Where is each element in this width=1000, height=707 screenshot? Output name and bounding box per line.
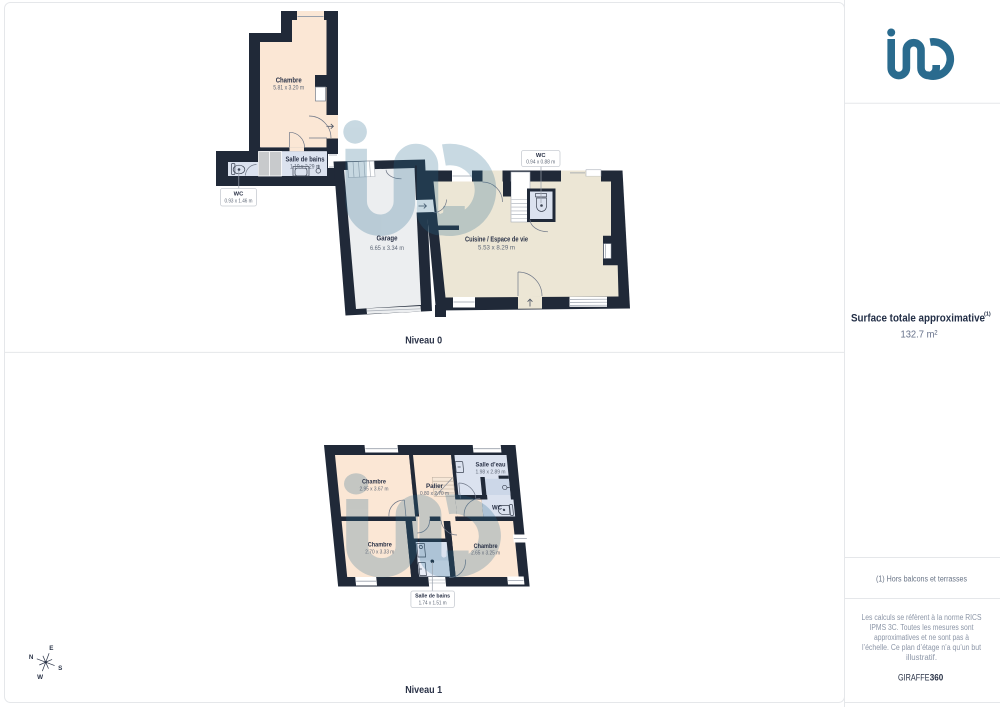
svg-text:Salle d’eau: Salle d’eau [476,462,506,469]
svg-text:W: W [37,674,43,681]
svg-text:GIRAFFE: GIRAFFE [898,673,930,684]
svg-text:1.98 x 2.89 m: 1.98 x 2.89 m [476,470,506,476]
svg-text:Chambre: Chambre [362,479,386,486]
svg-text:approximatives et ne sont pas: approximatives et ne sont pas à [874,633,969,642]
svg-text:Salle de bains: Salle de bains [415,594,450,600]
svg-text:Chambre: Chambre [276,78,302,85]
svg-text:(1) Hors balcons et terrasses: (1) Hors balcons et terrasses [876,575,967,584]
svg-text:1.19 x 2.29 m: 1.19 x 2.29 m [290,165,320,171]
svg-text:Salle de bains: Salle de bains [286,157,325,164]
svg-text:l’échelle. Ce plan d’étage n’a: l’échelle. Ce plan d’étage n’a qu’un but [862,643,982,652]
svg-text:WC: WC [234,192,244,198]
svg-text:Palier: Palier [426,483,443,490]
svg-text:WC: WC [492,506,503,512]
svg-text:Les calculs se réfèrent à la n: Les calculs se réfèrent à la norme RICS [862,613,982,622]
svg-text:Chambre: Chambre [368,542,392,549]
svg-text:illustratif.: illustratif. [906,653,937,662]
svg-text:2.95 x 3.67 m: 2.95 x 3.67 m [360,487,389,493]
svg-text:Niveau 0: Niveau 0 [405,335,442,347]
svg-text:0.94 x 0.88 m: 0.94 x 0.88 m [526,160,555,166]
svg-text:2.70 x 3.33 m: 2.70 x 3.33 m [365,550,394,556]
svg-text:(1): (1) [984,312,991,318]
svg-text:0.93 x 1.46 m: 0.93 x 1.46 m [225,199,253,205]
svg-text:Surface totale approximative: Surface totale approximative [851,313,985,325]
svg-text:IPMS 3C. Toutes les mesures so: IPMS 3C. Toutes les mesures sont [870,623,975,632]
svg-text:1.74 x 1.51 m: 1.74 x 1.51 m [419,601,447,607]
svg-text:0.80 x 2.70 m: 0.80 x 2.70 m [420,491,449,497]
svg-text:2.65 x 3.25 m: 2.65 x 3.25 m [471,550,500,556]
svg-text:Garage: Garage [377,236,398,243]
svg-text:6.65 x 3.34 m: 6.65 x 3.34 m [370,246,404,252]
svg-text:Cuisine / Espace de vie: Cuisine / Espace de vie [465,237,528,244]
svg-text:WC: WC [536,153,546,159]
svg-text:E: E [49,645,53,652]
svg-text:132.7 m²: 132.7 m² [901,330,939,341]
svg-text:360: 360 [930,673,944,684]
svg-text:5.81 x 3.20 m: 5.81 x 3.20 m [273,86,304,92]
svg-text:Chambre: Chambre [474,543,498,550]
svg-text:Niveau 1: Niveau 1 [405,684,442,696]
svg-text:5.53 x 8.29 m: 5.53 x 8.29 m [478,246,515,252]
svg-text:S: S [58,665,62,672]
svg-text:N: N [29,654,34,661]
